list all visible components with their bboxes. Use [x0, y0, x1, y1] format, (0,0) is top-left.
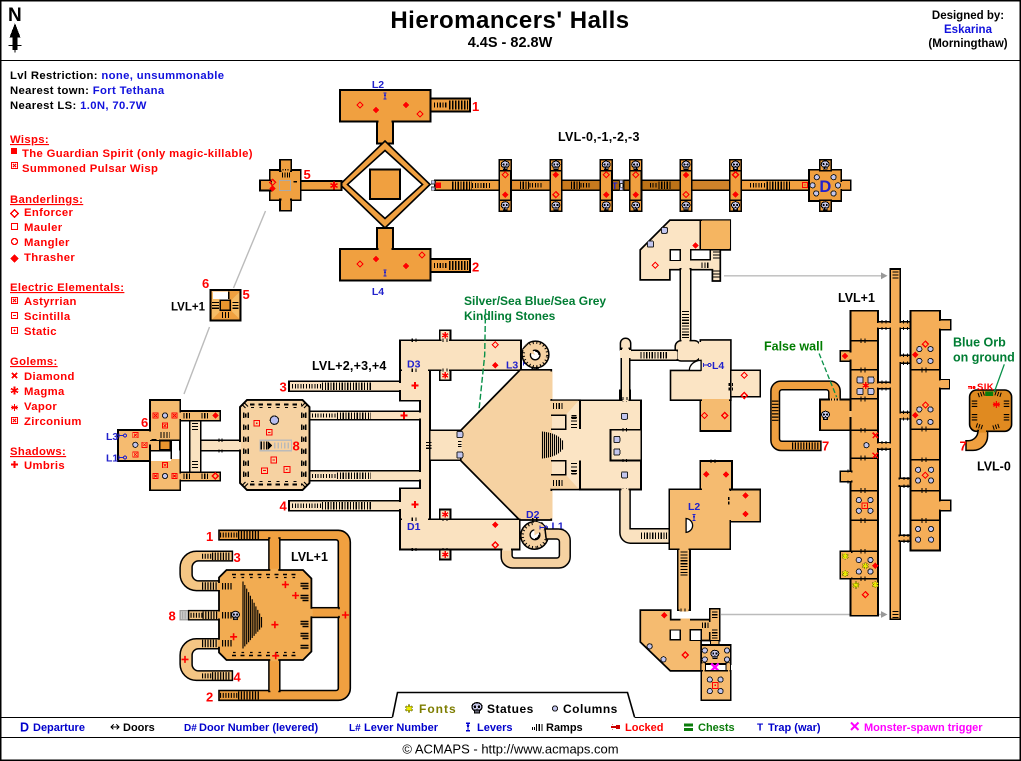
svg-text:Ramps: Ramps — [546, 722, 583, 734]
svg-text:T: T — [757, 723, 763, 734]
svg-text:Lvl Restriction: none, unsummo: Lvl Restriction: none, unsummonable — [10, 70, 224, 82]
svg-text:4.4S - 82.8W: 4.4S - 82.8W — [468, 35, 553, 51]
svg-text:Departure: Departure — [33, 722, 85, 734]
svg-text:SIK: SIK — [977, 382, 994, 393]
svg-text:Fonts: Fonts — [419, 702, 457, 716]
svg-text:Nearest LS: 1.0N, 70.7W: Nearest LS: 1.0N, 70.7W — [10, 100, 147, 112]
svg-text:Vapor: Vapor — [24, 401, 57, 413]
svg-text:D#: D# — [184, 723, 197, 734]
svg-text:L3: L3 — [506, 360, 518, 372]
svg-text:5: 5 — [243, 287, 250, 302]
svg-text:Umbris: Umbris — [24, 460, 65, 472]
svg-text:Silver/Sea Blue/Sea Grey: Silver/Sea Blue/Sea Grey — [464, 294, 606, 308]
svg-text:Columns: Columns — [563, 702, 618, 716]
svg-text:D: D — [20, 721, 29, 735]
svg-text:Thrasher: Thrasher — [24, 252, 75, 264]
svg-text:Blue Orb: Blue Orb — [953, 336, 1006, 350]
svg-text:8: 8 — [169, 609, 176, 624]
svg-text:Golems:: Golems: — [10, 356, 58, 368]
svg-text:LVL+1: LVL+1 — [171, 302, 206, 314]
svg-text:Locked: Locked — [625, 722, 664, 734]
svg-text:Trap (war): Trap (war) — [768, 722, 821, 734]
svg-text:N: N — [8, 5, 22, 26]
svg-text:T: T — [612, 181, 618, 191]
svg-text:Mangler: Mangler — [24, 237, 70, 249]
svg-text:Banderlings:: Banderlings: — [10, 194, 83, 206]
svg-text:Magma: Magma — [24, 386, 65, 398]
svg-text:3: 3 — [234, 550, 241, 565]
svg-text:False wall: False wall — [764, 340, 823, 354]
svg-text:Enforcer: Enforcer — [24, 207, 74, 219]
svg-text:L4: L4 — [372, 286, 384, 298]
svg-text:LVL-0: LVL-0 — [977, 460, 1011, 474]
svg-text:Summoned Pulsar Wisp: Summoned Pulsar Wisp — [22, 163, 158, 175]
svg-text:D3: D3 — [407, 359, 421, 371]
svg-text:Kindling Stones: Kindling Stones — [464, 309, 556, 323]
svg-text:Shadows:: Shadows: — [10, 446, 66, 458]
svg-text:D1: D1 — [407, 521, 421, 533]
svg-text:© ACMAPS - http://www.acmaps.c: © ACMAPS - http://www.acmaps.com — [402, 742, 618, 757]
svg-text:L2: L2 — [688, 501, 700, 513]
svg-text:6: 6 — [202, 276, 209, 291]
svg-text:Astyrrian: Astyrrian — [24, 296, 77, 308]
svg-text:Lever Number: Lever Number — [364, 722, 439, 734]
svg-text:(Morningthaw): (Morningthaw) — [928, 38, 1007, 50]
svg-text:Zirconium: Zirconium — [24, 416, 82, 428]
svg-text:Chests: Chests — [698, 722, 735, 734]
svg-text:7: 7 — [822, 439, 829, 454]
svg-text:Levers: Levers — [477, 722, 512, 734]
svg-text:4: 4 — [234, 670, 242, 685]
svg-text:Wisps:: Wisps: — [10, 134, 49, 146]
svg-text:on ground: on ground — [953, 351, 1015, 365]
svg-text:L3: L3 — [106, 431, 118, 443]
svg-text:L#: L# — [349, 723, 361, 734]
svg-text:LVL+1: LVL+1 — [291, 550, 328, 564]
svg-text:Door Number (levered): Door Number (levered) — [199, 722, 319, 734]
svg-text:LVL+1: LVL+1 — [838, 291, 875, 305]
svg-text:6: 6 — [141, 415, 148, 430]
svg-text:Hieromancers' Halls: Hieromancers' Halls — [390, 7, 629, 34]
svg-text:7: 7 — [960, 439, 967, 454]
svg-text:2: 2 — [206, 690, 213, 705]
svg-text:Static: Static — [24, 326, 57, 338]
svg-text:4: 4 — [280, 499, 288, 514]
svg-text:1: 1 — [206, 529, 213, 544]
svg-text:L2: L2 — [372, 79, 384, 91]
svg-text:The Guardian Spirit (only magi: The Guardian Spirit (only magic-killable… — [22, 148, 253, 160]
svg-text:Electric Elementals:: Electric Elementals: — [10, 282, 124, 294]
svg-text:Scintilla: Scintilla — [24, 311, 71, 323]
svg-text:LVL-0,-1,-2,-3: LVL-0,-1,-2,-3 — [558, 130, 640, 144]
svg-text:D: D — [819, 178, 831, 196]
svg-text:Designed by:: Designed by: — [932, 10, 1004, 22]
svg-text:L4: L4 — [712, 360, 724, 372]
svg-text:L1: L1 — [106, 453, 118, 465]
svg-text:Monster-spawn trigger: Monster-spawn trigger — [864, 722, 983, 734]
svg-text:8: 8 — [293, 439, 300, 454]
svg-text:Mauler: Mauler — [24, 222, 63, 234]
svg-text:3: 3 — [280, 380, 287, 395]
svg-text:Nearest town: Fort Tethana: Nearest town: Fort Tethana — [10, 85, 165, 97]
svg-text:1: 1 — [472, 99, 479, 114]
svg-text:LVL+2,+3,+4: LVL+2,+3,+4 — [312, 359, 387, 373]
svg-text:Diamond: Diamond — [24, 371, 75, 383]
svg-text:Statues: Statues — [487, 702, 534, 716]
svg-text:5: 5 — [304, 167, 311, 182]
svg-text:Eskarina: Eskarina — [944, 24, 993, 36]
svg-text:2: 2 — [472, 260, 479, 275]
svg-text:Doors: Doors — [123, 722, 155, 734]
